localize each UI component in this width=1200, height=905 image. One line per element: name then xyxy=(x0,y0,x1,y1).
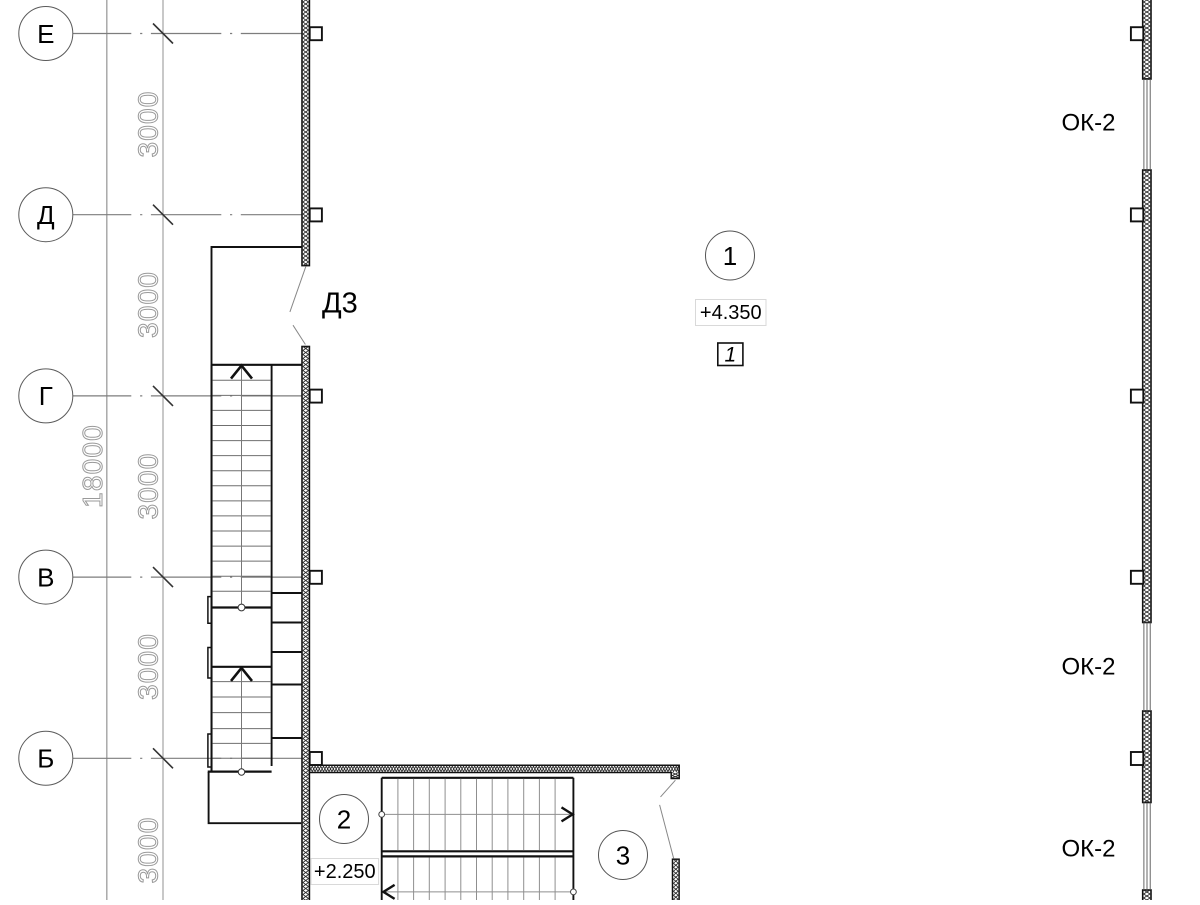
svg-text:3000: 3000 xyxy=(133,452,164,519)
svg-text:В: В xyxy=(37,562,54,592)
svg-text:1: 1 xyxy=(723,241,737,271)
svg-text:+4.350: +4.350 xyxy=(700,302,762,324)
svg-text:3: 3 xyxy=(616,840,630,870)
svg-text:3000: 3000 xyxy=(133,816,164,883)
svg-text:ОК-2: ОК-2 xyxy=(1062,836,1116,863)
svg-text:Е: Е xyxy=(37,19,54,49)
svg-text:2: 2 xyxy=(337,804,351,834)
svg-text:18000: 18000 xyxy=(77,424,108,508)
svg-text:Г: Г xyxy=(39,381,53,411)
svg-text:+2.250: +2.250 xyxy=(314,861,376,883)
svg-text:Б: Б xyxy=(37,744,54,774)
svg-text:Д3: Д3 xyxy=(322,288,358,320)
svg-text:ОК-2: ОК-2 xyxy=(1062,110,1116,137)
svg-text:3000: 3000 xyxy=(133,271,164,338)
svg-text:3000: 3000 xyxy=(133,90,164,157)
svg-text:3000: 3000 xyxy=(133,633,164,700)
svg-text:1: 1 xyxy=(724,344,736,367)
svg-text:Д: Д xyxy=(37,200,55,230)
svg-text:ОК-2: ОК-2 xyxy=(1062,654,1116,681)
